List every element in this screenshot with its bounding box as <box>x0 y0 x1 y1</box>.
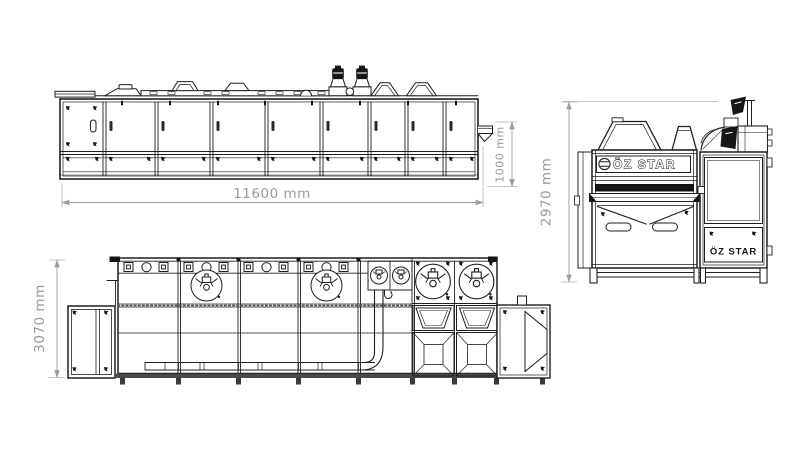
cabinet-latch <box>698 187 705 194</box>
outfeed-section <box>497 296 550 378</box>
side-body <box>60 99 478 179</box>
dim-discharge-height-label: 1000 mm <box>494 126 507 182</box>
drawing-svg: 11600 mm 1000 mm <box>0 0 800 465</box>
burner-fan-icon <box>416 264 451 299</box>
burner-fan-icon <box>311 270 342 301</box>
burner-fan-icon <box>459 264 494 299</box>
technical-drawing-canvas: 11600 mm 1000 mm <box>0 0 800 465</box>
end-panel-handle <box>91 120 97 132</box>
electrical-cabinet: ÖZ STAR <box>698 152 772 268</box>
burner-fan-icon <box>191 270 222 301</box>
conveyor-belt-slot <box>595 184 694 192</box>
dim-length-label: 11600 mm <box>233 186 311 202</box>
small-fan-icon <box>393 267 410 284</box>
small-fan-icon <box>371 267 388 284</box>
dim-width-label: 3070 mm <box>32 284 48 352</box>
end-body: ÖZ STAR <box>575 150 700 268</box>
ozstar-logo-primary-text: ÖZ STAR <box>613 157 676 172</box>
dim-height-label: 2970 mm <box>539 158 555 226</box>
ozstar-logo-secondary-text: ÖZ STAR <box>710 247 757 258</box>
